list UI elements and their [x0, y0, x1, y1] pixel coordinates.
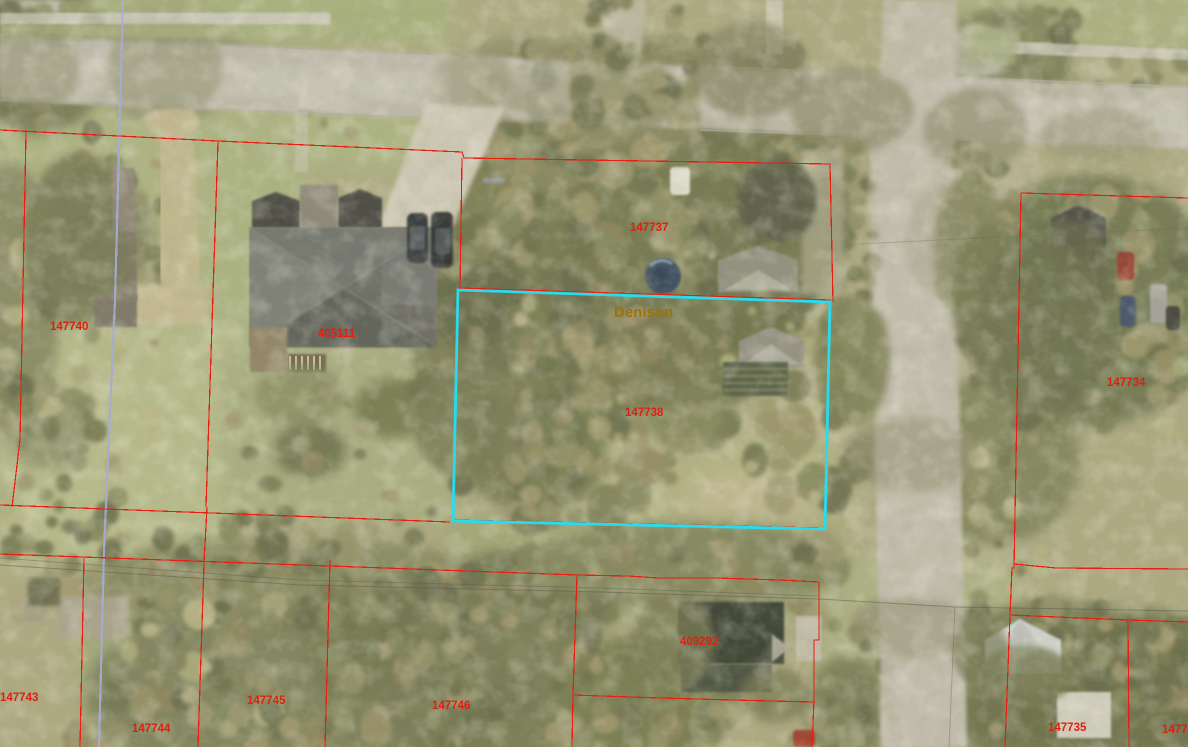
svg-text:Denison: Denison — [614, 304, 673, 321]
svg-text:147734: 147734 — [1107, 377, 1146, 389]
svg-text:147744: 147744 — [132, 723, 171, 735]
svg-text:147745: 147745 — [247, 695, 286, 707]
svg-text:147746: 147746 — [432, 700, 470, 712]
svg-text:147737: 147737 — [630, 222, 668, 234]
svg-text:147738: 147738 — [625, 407, 664, 419]
svg-text:147743: 147743 — [0, 692, 38, 704]
svg-text:147740: 147740 — [50, 321, 88, 333]
svg-text:409292: 409292 — [680, 636, 718, 648]
svg-text:405111: 405111 — [318, 328, 356, 340]
svg-text:14773: 14773 — [1162, 724, 1188, 736]
svg-text:147735: 147735 — [1048, 722, 1087, 734]
